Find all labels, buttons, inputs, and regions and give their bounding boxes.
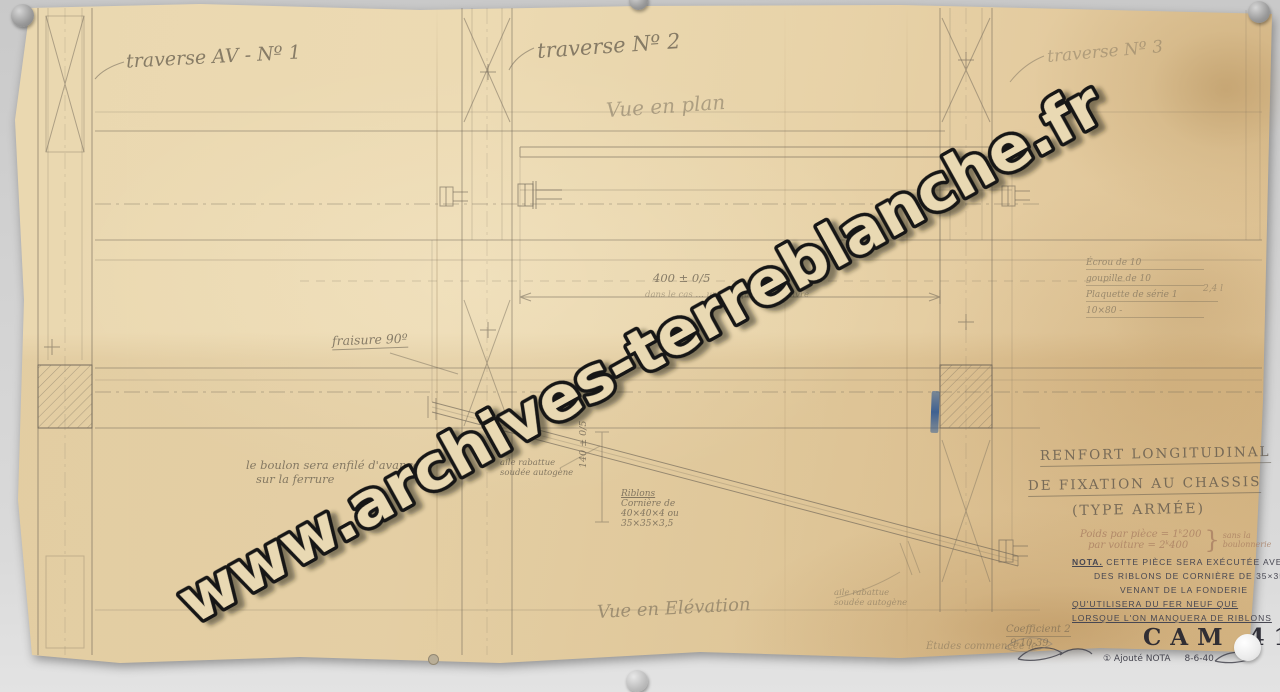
study-date: 9-10-39 (1010, 638, 1049, 649)
weight-brace: } (1204, 526, 1219, 554)
riblons-note: Riblons Cornière de 40×40×4 ou 35×35×3,5 (621, 489, 679, 529)
weight-note: Poids par pièce = 1ᵏ200 par voiture = 2ᵏ… (1080, 526, 1271, 554)
bolt-note-line2: sur la ferrure (256, 472, 420, 486)
drawing-title-line2: DE FIXATION AU CHASSIS (1028, 474, 1262, 497)
nota-block: NOTA. CETTE PIÈCE SERA EXÉCUTÉE AVEC DES… (1072, 555, 1280, 625)
blue-pencil-mark (930, 391, 939, 433)
riblons-note-line4: 35×35×3,5 (621, 519, 679, 529)
parts-list-row: 10×80 - (1086, 306, 1204, 318)
parts-list-row: Plaquette de série 1 (1086, 290, 1218, 302)
weld-note-a: aile rabattue soudée autogène (500, 458, 573, 478)
coefficient-note: Coefficient 2 (1006, 624, 1071, 637)
parts-list-qty: 2,4 l (1203, 284, 1223, 294)
dimension-140: 140 ± 0/5 (578, 421, 589, 468)
traverse-1-lines (38, 8, 92, 655)
weld-note-b: aile rabattue soudée autogène (834, 588, 907, 608)
weld-note-b-line2: soudée autogène (834, 598, 907, 608)
revision-note: ① Ajouté NOTA (1103, 654, 1171, 664)
weight-note-line1: sans la (1223, 531, 1272, 540)
nota-line1: CETTE PIÈCE SERA EXÉCUTÉE AVEC (1106, 557, 1280, 567)
weight-line2: par voiture = 2ᵏ400 (1088, 540, 1201, 551)
riblons-note-line3: 40×40×4 ou (621, 509, 679, 519)
weld-note-b-line1: aile rabattue (834, 588, 907, 598)
bolt-note-line1: le boulon sera enfilé d'avance (246, 458, 420, 472)
riblons-note-line1: Riblons (621, 489, 679, 499)
weld-note-a-line1: aile rabattue (500, 458, 573, 468)
scanned-drawing: traverse AV - Nº 1 traverse Nº 2 travers… (0, 0, 1280, 692)
riblons-note-line2: Cornière de (621, 499, 679, 509)
weld-note-a-line2: soudée autogène (500, 468, 573, 478)
weight-note-line2: boulonnerie (1223, 540, 1272, 549)
dimension-400: 400 ± 0/5 (653, 271, 710, 285)
nota-line5: LORSQUE L'ON MANQUERA DE RIBLONS (1072, 611, 1280, 625)
traverse-3-lines (940, 8, 992, 612)
revision-line: ① Ajouté NOTA 8-6-40 (1103, 654, 1214, 664)
drawing-title-line1: RENFORT LONGITUDINAL (1040, 444, 1271, 467)
traverse-2-lines (462, 8, 512, 655)
plaquette-note: dans le cas … une plaquette de cuivre (645, 290, 809, 300)
drawing-title-line3: (TYPE ARMÉE) (1072, 501, 1205, 519)
nota-line2: DES RIBLONS DE CORNIÈRE DE 35×35 (1094, 569, 1280, 583)
mounting-pin-bottom-center (626, 670, 648, 692)
nota-label: NOTA. (1072, 557, 1103, 567)
mounting-pin-bottom-right (1234, 634, 1261, 661)
nota-line4: QU'UTILISERA DU FER NEUF QUE (1072, 597, 1280, 611)
parts-list-row: Écrou de 10 (1086, 258, 1204, 270)
mounting-pin-top-left (11, 4, 34, 27)
fraisure-note: fraisure 90º (332, 331, 408, 351)
nota-line3: VENANT DE LA FONDERIE (1120, 583, 1280, 597)
revision-date: 8-6-40 (1185, 654, 1214, 664)
bolt-note: le boulon sera enfilé d'avance sur la fe… (246, 458, 420, 486)
paper-hole (428, 654, 439, 665)
weight-line1: Poids par pièce = 1ᵏ200 (1080, 529, 1201, 540)
parts-list: Écrou de 10 goupille de 10 Plaquette de … (1086, 258, 1218, 322)
parts-list-row: goupille de 10 (1086, 274, 1204, 286)
mounting-pin-top-right (1248, 1, 1270, 23)
